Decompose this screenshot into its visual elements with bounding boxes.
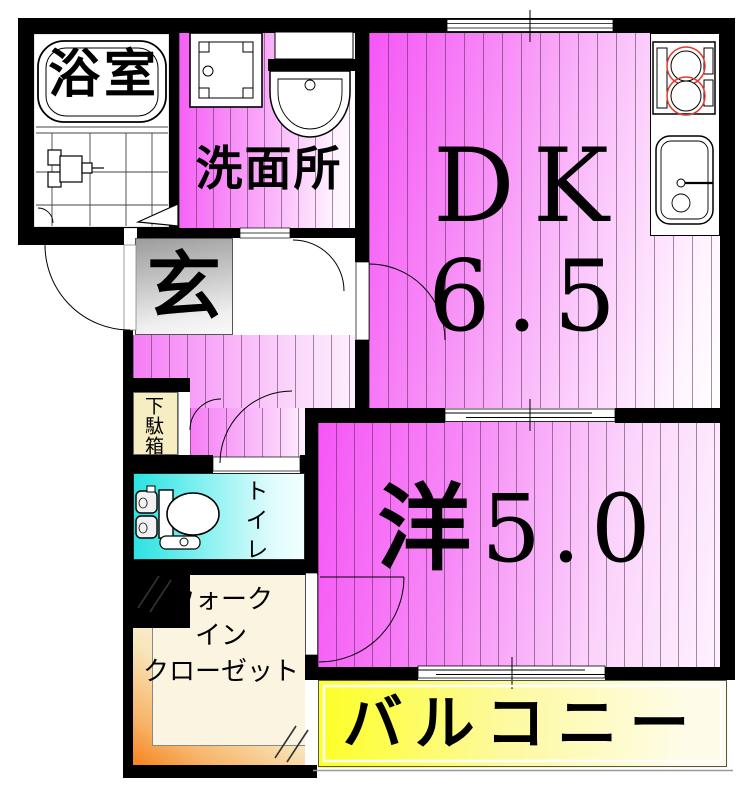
toilet-door-opening (213, 457, 300, 471)
closet-door-opening (306, 573, 318, 655)
kitchen-stove-icon (653, 42, 715, 115)
balcony-window (418, 657, 605, 689)
closet-label-line3: クローゼット (137, 654, 305, 690)
dk-western-sliding-door (445, 399, 615, 431)
closet-label-line2: イン (137, 618, 305, 654)
dk-window (447, 10, 613, 42)
western-room-label: 洋5.0 (318, 482, 720, 577)
bath-folding-door-icon (138, 204, 178, 226)
walk-in-closet-label: ウォーク イン クローゼット (137, 582, 305, 690)
western-room-name: 洋 (377, 474, 481, 584)
washroom-label: 洗面所 (183, 146, 355, 193)
bath-corner-arc (38, 208, 53, 223)
dk-size-label: 6.5 (380, 248, 680, 346)
washing-machine-pan-icon (190, 33, 262, 107)
dk-door-opening (356, 262, 369, 340)
toilet-label: トイレ (242, 479, 265, 567)
closet-door-swing (319, 577, 404, 662)
dk-label: DK (380, 136, 680, 238)
balcony-label: バルコニー (322, 694, 722, 754)
closet-label-line1: ウォーク (137, 582, 305, 618)
western-room-size: 5.0 (481, 475, 661, 584)
shoe-cabinet-label: 下駄箱 (143, 396, 162, 454)
vanity-sink-icon (270, 71, 350, 137)
washroom-door-swing (293, 240, 344, 291)
floor-plan: 浴室 洗面所 玄 下駄箱 トイレ DK 6.5 洋5.0 ウォーク イン クロー… (0, 0, 749, 800)
washroom-recess-wall (268, 59, 362, 71)
entrance-label: 玄 (135, 238, 233, 335)
toilet-door-swing (220, 391, 292, 463)
toilet-bowl-icon (136, 486, 219, 549)
entrance-door-swing (45, 245, 130, 330)
bath-faucet-icon (48, 150, 104, 187)
fixtures-overlay (0, 0, 749, 800)
shoe-cabinet-door-swing (190, 399, 221, 430)
bathroom-label: 浴室 (40, 49, 168, 101)
washroom-window-recess (275, 32, 353, 59)
